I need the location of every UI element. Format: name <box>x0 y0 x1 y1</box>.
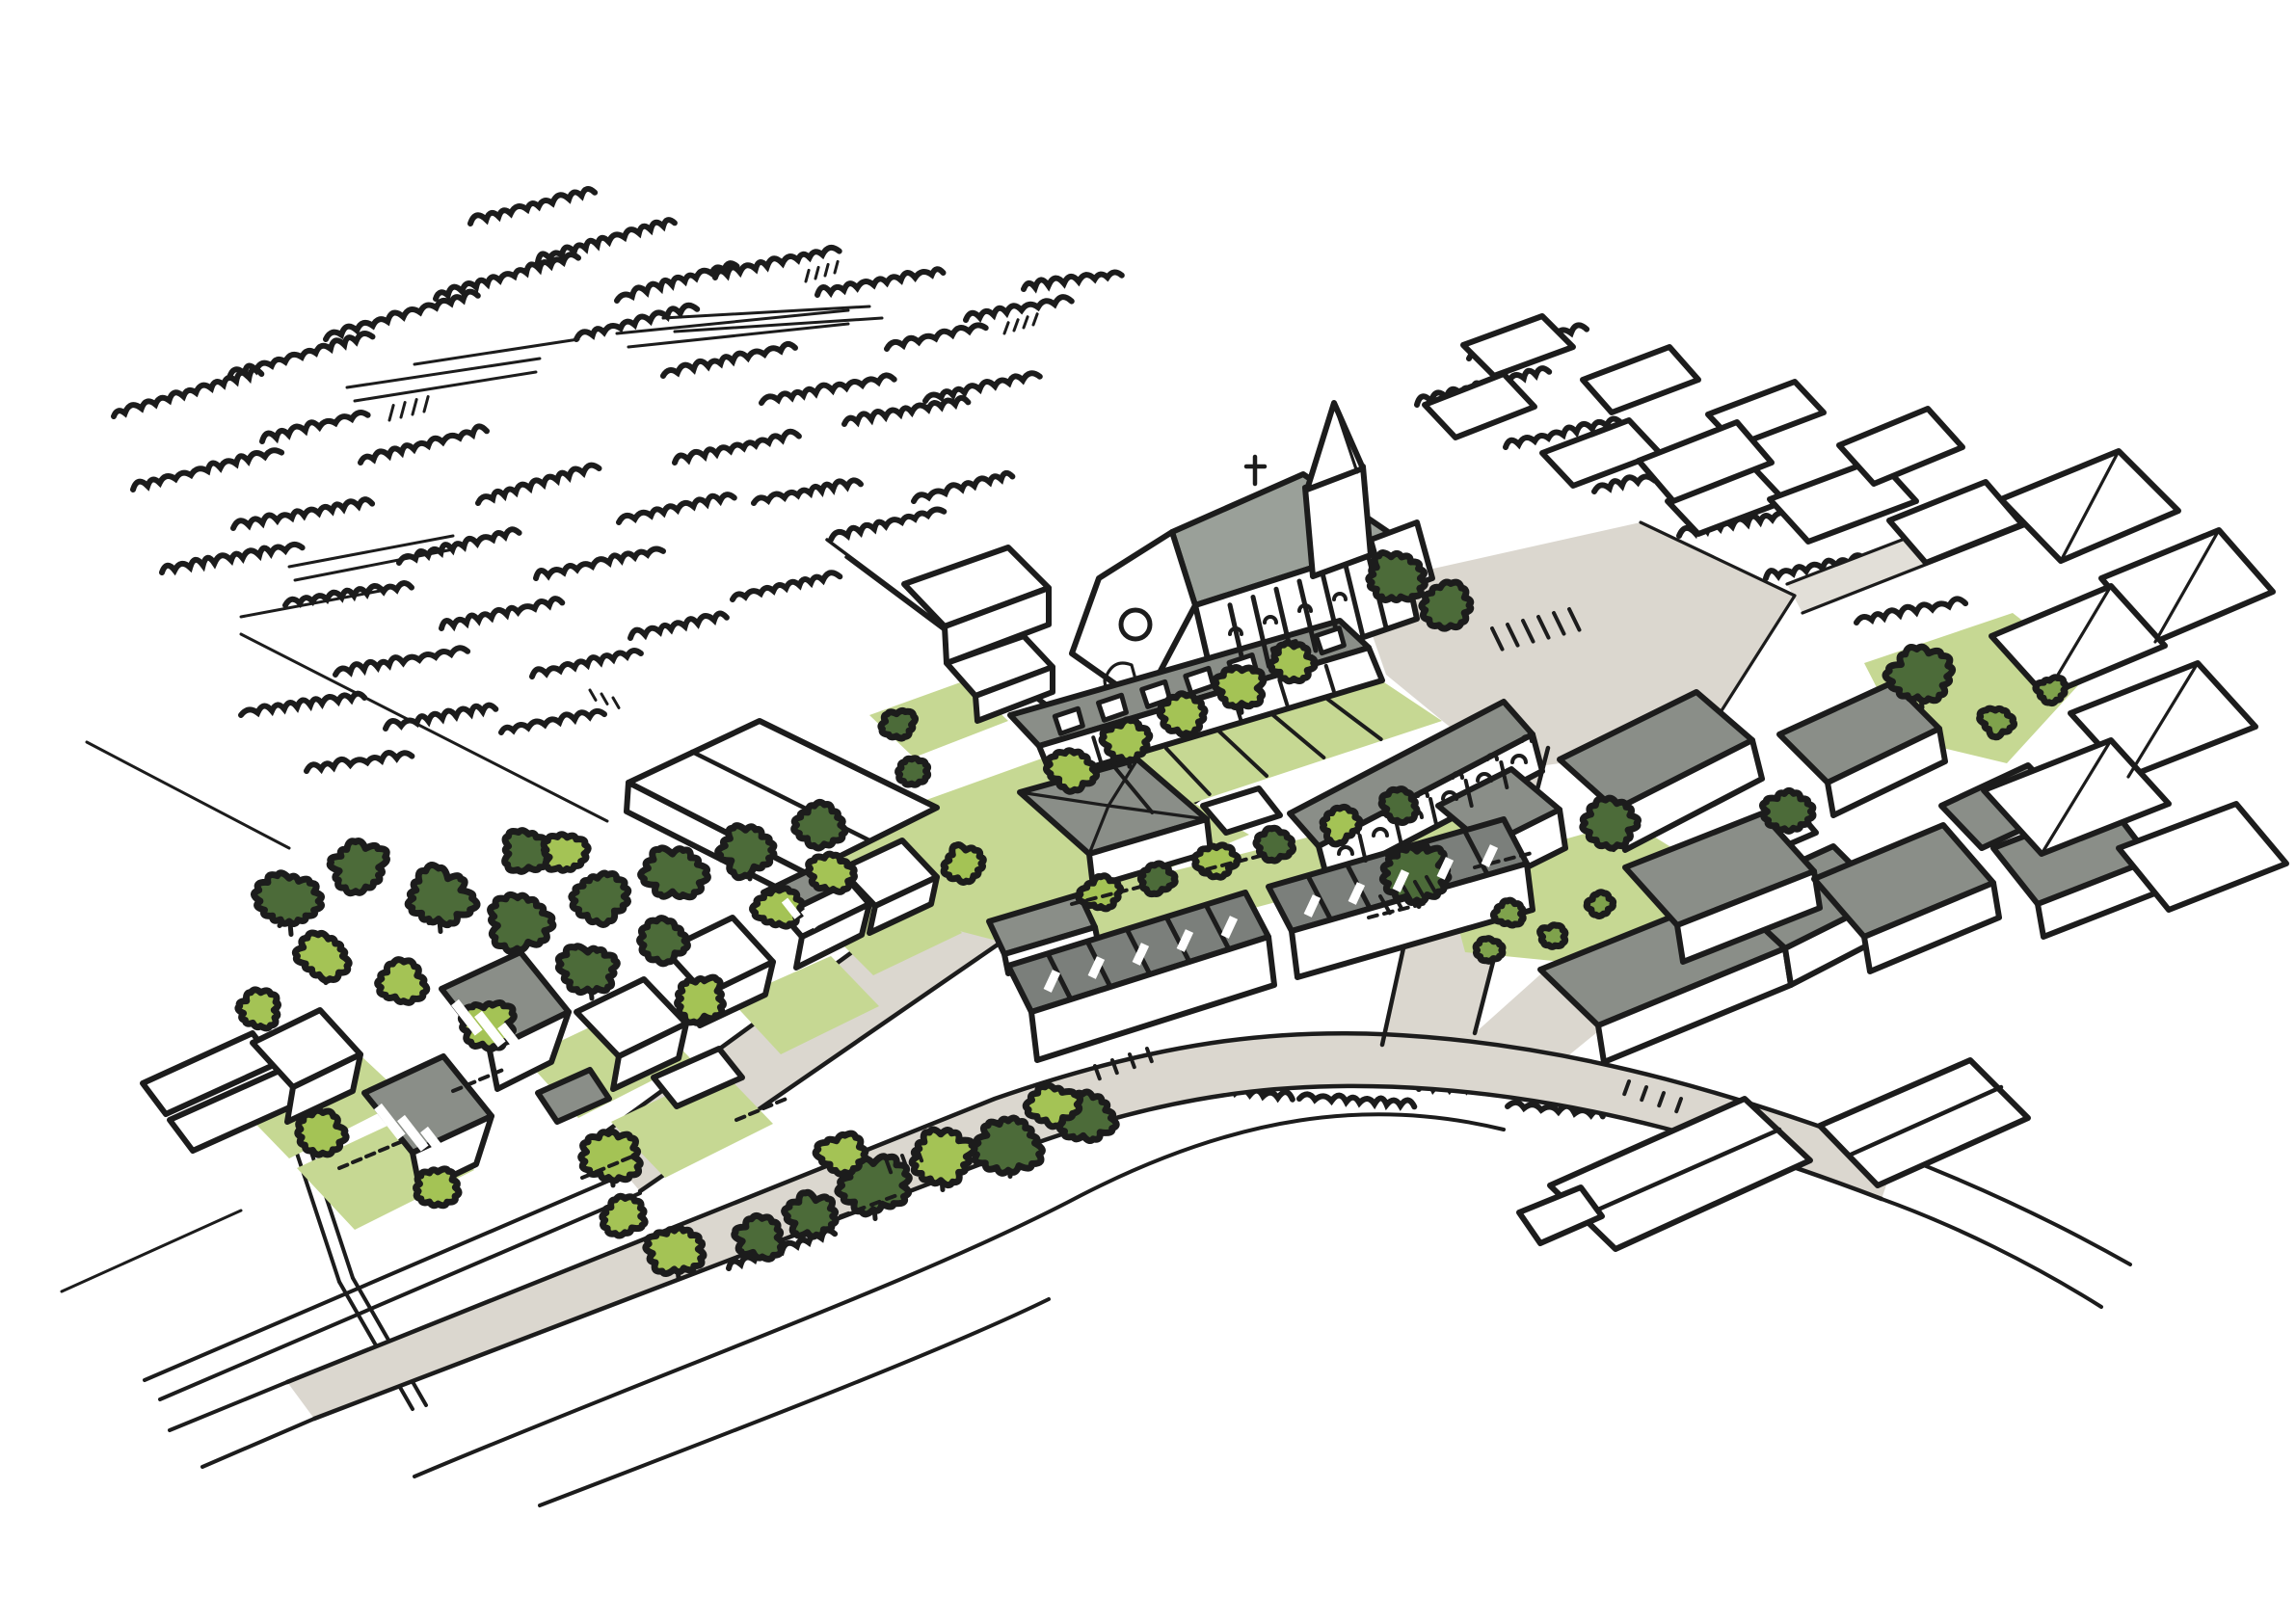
tree <box>602 1196 645 1236</box>
hedgerow-scribble <box>114 369 261 416</box>
hedgerow-scribble <box>754 480 861 503</box>
tree <box>1102 720 1150 761</box>
tree <box>254 873 321 924</box>
hedgerow-scribble <box>761 375 894 403</box>
hedgerow-scribble <box>663 344 795 376</box>
hedgerow-scribble <box>619 494 734 522</box>
tree <box>809 854 855 891</box>
tree <box>378 960 427 1003</box>
tree <box>898 758 928 785</box>
hedgerow-scribble <box>817 269 944 295</box>
hedgerow-scribble <box>733 572 840 599</box>
hedgerow-scribble <box>538 220 675 262</box>
hedgerow-scribble <box>335 648 467 675</box>
hedgerow-scribble <box>576 306 697 339</box>
hedgerow-scribble <box>478 466 600 503</box>
hedgerow-scribble <box>470 189 595 224</box>
hedgerow-scribble <box>925 373 1040 401</box>
tree <box>544 835 588 870</box>
tree <box>2036 678 2066 704</box>
tree <box>558 946 617 993</box>
tree <box>572 873 628 924</box>
ridge-cross <box>1246 457 1265 484</box>
hedgerow-scribble <box>436 254 578 299</box>
tree <box>678 977 724 1023</box>
context-building <box>1425 374 1535 438</box>
hedgerow-scribble <box>233 499 372 528</box>
tree <box>641 848 708 897</box>
tree <box>646 1228 704 1273</box>
tree <box>1160 694 1205 734</box>
tree <box>1540 925 1565 946</box>
hedgerow-scribble <box>262 412 368 441</box>
hedgerow-scribble <box>536 548 663 578</box>
hedgerow-scribble <box>914 473 1012 501</box>
tree <box>298 1110 346 1155</box>
tree <box>491 894 553 951</box>
tree <box>1422 582 1471 628</box>
context-building <box>1463 316 1573 376</box>
hedgerow-scribble <box>162 545 303 572</box>
outbuilding <box>1519 1187 1602 1243</box>
hedgerow-scribble <box>844 398 968 424</box>
tree <box>238 990 279 1028</box>
hedgerow-scribble <box>831 510 944 540</box>
hedgerow-scribble <box>501 711 604 732</box>
hedgerow-scribble <box>1856 599 1965 623</box>
tree <box>1587 892 1613 917</box>
hedgerow-scribble <box>966 297 1072 320</box>
hedgerow-scribble <box>285 583 412 605</box>
hedgerow-scribble <box>630 613 727 638</box>
tree <box>1215 667 1263 706</box>
masterplan-sketch-canvas <box>0 0 2296 1623</box>
tree <box>330 841 387 893</box>
tree <box>1140 864 1175 894</box>
masterplan-sketch <box>0 0 2296 1623</box>
tree <box>295 933 349 980</box>
tree <box>408 865 477 924</box>
tree <box>785 1192 836 1237</box>
hedgerow-scribble <box>241 694 364 715</box>
tree <box>944 845 983 883</box>
tree <box>416 1169 460 1206</box>
tree <box>1493 900 1523 925</box>
tree <box>1194 845 1238 877</box>
context-building <box>1583 347 1698 412</box>
tree <box>972 1118 1042 1173</box>
hedgerow-scribble <box>532 651 641 677</box>
tree <box>1369 553 1426 600</box>
hedgerow-scribble <box>133 450 281 490</box>
hedgerow-scribble <box>360 426 487 463</box>
hedgerow-scribble <box>1024 273 1122 289</box>
tree <box>1476 939 1503 962</box>
tree <box>1762 790 1813 831</box>
hedgerow-scribble <box>887 325 986 349</box>
hedgerow-scribble <box>307 753 412 771</box>
hedgerow-scribble <box>326 292 478 339</box>
tree <box>1583 798 1639 848</box>
hedgerow-scribble <box>1299 1094 1414 1106</box>
tree <box>1270 643 1315 681</box>
hedgerow-scribble <box>441 599 562 628</box>
hedgerow-scribble <box>399 529 520 563</box>
hedgerow-scribble <box>675 432 799 463</box>
tree <box>1381 789 1417 823</box>
tree <box>881 710 916 738</box>
